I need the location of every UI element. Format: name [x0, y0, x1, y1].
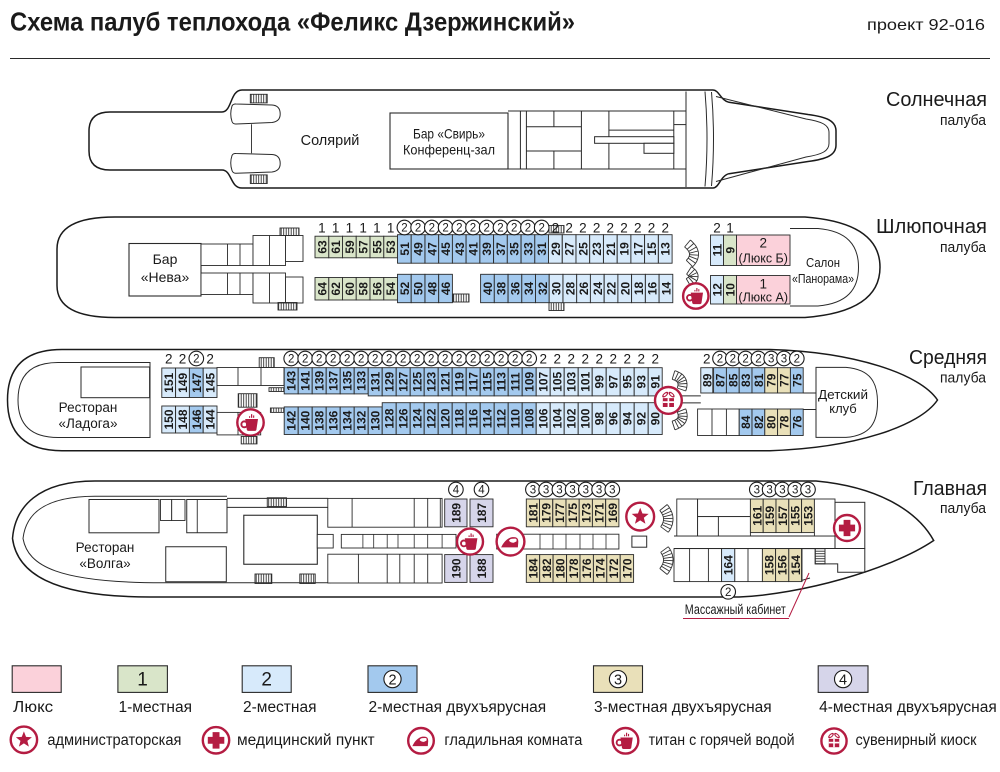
svg-text:Солнечная: Солнечная: [886, 89, 987, 111]
svg-text:2: 2: [759, 236, 767, 251]
svg-text:29: 29: [549, 242, 563, 256]
svg-text:121: 121: [439, 371, 453, 391]
svg-text:16: 16: [646, 282, 660, 296]
svg-text:141: 141: [299, 370, 313, 390]
svg-text:2: 2: [302, 354, 308, 366]
svg-text:3: 3: [583, 485, 589, 497]
svg-text:2: 2: [414, 354, 420, 366]
svg-text:145: 145: [204, 372, 218, 392]
svg-text:107: 107: [537, 371, 551, 391]
svg-text:116: 116: [467, 409, 481, 429]
svg-text:18: 18: [632, 282, 646, 296]
svg-text:31: 31: [535, 242, 549, 256]
svg-text:100: 100: [579, 408, 593, 428]
svg-text:2: 2: [288, 354, 294, 366]
svg-text:143: 143: [285, 370, 299, 390]
svg-text:2: 2: [456, 223, 462, 235]
svg-text:2: 2: [415, 223, 421, 235]
svg-text:39: 39: [480, 242, 494, 256]
svg-text:104: 104: [551, 408, 565, 428]
svg-text:53: 53: [384, 240, 398, 254]
svg-text:3: 3: [596, 485, 602, 497]
svg-text:175: 175: [566, 503, 580, 523]
svg-text:2: 2: [717, 354, 723, 366]
svg-text:102: 102: [565, 408, 579, 428]
svg-text:2: 2: [456, 354, 462, 366]
svg-text:2: 2: [498, 354, 504, 366]
svg-text:4: 4: [478, 485, 485, 497]
svg-text:9: 9: [724, 247, 738, 254]
svg-text:4: 4: [453, 485, 460, 497]
svg-text:2: 2: [388, 672, 396, 688]
svg-text:38: 38: [495, 282, 509, 296]
svg-text:2: 2: [609, 351, 617, 366]
svg-text:188: 188: [475, 558, 489, 578]
svg-text:проект 92-016: проект 92-016: [867, 17, 985, 34]
svg-text:36: 36: [508, 282, 522, 296]
svg-text:178: 178: [567, 558, 581, 578]
svg-text:2: 2: [372, 354, 378, 366]
svg-text:2: 2: [525, 223, 531, 235]
svg-text:140: 140: [299, 410, 313, 430]
svg-text:34: 34: [522, 282, 536, 296]
svg-text:173: 173: [579, 503, 593, 523]
svg-text:17: 17: [631, 242, 645, 256]
svg-text:135: 135: [341, 370, 355, 390]
svg-text:10: 10: [724, 283, 738, 297]
svg-text:76: 76: [790, 415, 804, 429]
svg-text:125: 125: [411, 371, 425, 391]
svg-text:3: 3: [556, 485, 562, 497]
svg-text:21: 21: [604, 242, 618, 256]
svg-text:2: 2: [358, 354, 364, 366]
svg-text:117: 117: [467, 372, 481, 392]
svg-text:Солярий: Солярий: [301, 133, 360, 149]
svg-text:151: 151: [162, 372, 176, 392]
svg-text:«Нева»: «Нева»: [141, 269, 190, 285]
svg-text:3: 3: [569, 485, 575, 497]
svg-text:33: 33: [521, 242, 535, 256]
svg-text:142: 142: [285, 410, 299, 430]
svg-text:1: 1: [387, 220, 395, 235]
svg-text:Шлюпочная: Шлюпочная: [876, 216, 987, 238]
svg-text:2: 2: [623, 351, 631, 366]
svg-text:179: 179: [540, 503, 554, 523]
svg-text:15: 15: [645, 242, 659, 256]
svg-text:98: 98: [593, 412, 607, 426]
svg-text:2: 2: [620, 220, 628, 235]
svg-text:131: 131: [369, 371, 383, 391]
svg-text:2: 2: [794, 354, 800, 366]
svg-text:146: 146: [190, 409, 204, 429]
svg-text:3: 3: [766, 485, 772, 497]
svg-text:«Панорама»: «Панорама»: [792, 272, 854, 286]
svg-text:2: 2: [330, 354, 336, 366]
svg-text:2: 2: [400, 354, 406, 366]
svg-text:28: 28: [563, 282, 577, 296]
svg-text:11: 11: [711, 244, 725, 257]
svg-text:95: 95: [621, 375, 635, 389]
svg-text:3: 3: [609, 485, 615, 497]
svg-text:112: 112: [495, 409, 509, 429]
svg-text:2: 2: [511, 223, 517, 235]
svg-text:2: 2: [316, 354, 322, 366]
svg-text:Ресторан: Ресторан: [59, 400, 118, 415]
svg-text:Ресторан: Ресторан: [76, 540, 135, 555]
svg-text:«Ладога»: «Ладога»: [59, 416, 118, 431]
svg-text:2: 2: [730, 354, 736, 366]
svg-text:2: 2: [179, 351, 187, 366]
svg-text:2: 2: [497, 223, 503, 235]
svg-text:титан с горячей водой: титан с горячей водой: [649, 732, 795, 749]
svg-text:153: 153: [802, 505, 816, 525]
svg-text:2: 2: [713, 220, 721, 235]
svg-text:138: 138: [313, 410, 327, 430]
svg-text:сувенирный киоск: сувенирный киоск: [856, 732, 977, 749]
svg-text:47: 47: [425, 242, 439, 256]
svg-text:26: 26: [577, 282, 591, 296]
svg-text:клуб: клуб: [829, 401, 857, 416]
svg-text:1: 1: [346, 220, 354, 235]
svg-text:156: 156: [776, 555, 790, 575]
svg-text:144: 144: [204, 409, 218, 429]
svg-text:122: 122: [425, 408, 439, 428]
svg-text:25: 25: [576, 242, 590, 256]
svg-text:62: 62: [329, 282, 343, 296]
svg-text:52: 52: [398, 282, 412, 296]
svg-text:148: 148: [176, 409, 190, 429]
svg-text:176: 176: [580, 558, 594, 578]
svg-text:«Волга»: «Волга»: [79, 556, 130, 571]
svg-text:2: 2: [470, 354, 476, 366]
svg-text:2: 2: [725, 587, 731, 599]
svg-text:2: 2: [661, 220, 669, 235]
svg-text:110: 110: [509, 409, 523, 429]
svg-text:администраторская: администраторская: [47, 732, 181, 749]
svg-text:2: 2: [567, 351, 575, 366]
svg-text:132: 132: [355, 410, 369, 430]
svg-text:174: 174: [594, 558, 608, 578]
svg-text:2: 2: [538, 223, 544, 235]
svg-text:палуба: палуба: [940, 112, 987, 129]
svg-text:172: 172: [607, 558, 621, 578]
svg-text:56: 56: [370, 282, 384, 296]
svg-text:Средняя: Средняя: [909, 347, 987, 369]
svg-text:37: 37: [494, 242, 508, 256]
svg-text:Салон: Салон: [806, 256, 840, 270]
svg-text:106: 106: [537, 408, 551, 428]
svg-text:2-местная: 2-местная: [243, 699, 316, 716]
svg-text:43: 43: [453, 242, 467, 256]
svg-text:20: 20: [618, 282, 632, 296]
svg-text:60: 60: [343, 282, 357, 296]
svg-text:2: 2: [261, 670, 272, 691]
svg-text:3: 3: [614, 672, 622, 688]
svg-text:180: 180: [553, 558, 567, 578]
svg-text:2: 2: [470, 223, 476, 235]
svg-text:89: 89: [700, 373, 714, 387]
svg-text:3: 3: [754, 485, 760, 497]
svg-text:2: 2: [165, 351, 173, 366]
svg-text:2: 2: [742, 354, 748, 366]
svg-text:палуба: палуба: [940, 239, 987, 256]
svg-text:2: 2: [429, 223, 435, 235]
svg-text:190: 190: [449, 558, 463, 578]
svg-text:Конференц-зал: Конференц-зал: [403, 142, 495, 158]
svg-text:59: 59: [343, 240, 357, 254]
svg-text:3: 3: [792, 485, 798, 497]
svg-text:Детский: Детский: [818, 387, 868, 402]
svg-text:64: 64: [315, 282, 329, 296]
svg-text:113: 113: [495, 372, 509, 392]
svg-text:126: 126: [397, 408, 411, 428]
svg-text:гладильная комната: гладильная комната: [444, 732, 582, 749]
svg-text:35: 35: [508, 242, 522, 256]
svg-text:154: 154: [789, 555, 803, 575]
svg-text:2: 2: [484, 354, 490, 366]
svg-text:32: 32: [536, 282, 550, 296]
svg-text:2: 2: [193, 354, 199, 366]
svg-text:3: 3: [530, 485, 536, 497]
svg-text:Люкс: Люкс: [13, 699, 53, 716]
svg-text:13: 13: [659, 242, 673, 256]
svg-text:134: 134: [341, 410, 355, 430]
svg-text:149: 149: [176, 372, 190, 392]
svg-text:2: 2: [595, 351, 603, 366]
svg-text:2: 2: [593, 220, 601, 235]
svg-text:30: 30: [550, 282, 564, 296]
svg-text:97: 97: [607, 375, 621, 389]
svg-text:2: 2: [344, 354, 350, 366]
svg-text:4-местная двухъярусная: 4-местная двухъярусная: [819, 699, 997, 716]
svg-text:палуба: палуба: [940, 370, 987, 387]
svg-text:3: 3: [779, 485, 785, 497]
svg-text:3: 3: [768, 354, 774, 366]
svg-text:1: 1: [359, 220, 367, 235]
svg-text:115: 115: [481, 372, 495, 392]
svg-text:4: 4: [839, 672, 847, 688]
svg-text:2: 2: [206, 351, 214, 366]
svg-text:2: 2: [581, 351, 589, 366]
svg-text:147: 147: [190, 372, 204, 392]
svg-text:1: 1: [332, 220, 340, 235]
svg-text:105: 105: [551, 371, 565, 391]
svg-text:1: 1: [373, 220, 381, 235]
svg-text:92: 92: [635, 412, 649, 426]
svg-text:94: 94: [621, 412, 635, 426]
svg-text:2: 2: [442, 354, 448, 366]
svg-text:189: 189: [449, 503, 463, 523]
svg-text:Схема палуб теплохода «Феликс: Схема палуб теплохода «Феликс Дзержински…: [10, 7, 575, 37]
svg-text:1: 1: [726, 220, 734, 235]
svg-text:158: 158: [763, 555, 777, 575]
svg-text:137: 137: [327, 370, 341, 390]
svg-text:90: 90: [649, 412, 663, 426]
svg-text:1: 1: [318, 220, 326, 235]
svg-text:54: 54: [384, 282, 398, 296]
svg-text:48: 48: [425, 282, 439, 296]
svg-text:58: 58: [357, 282, 371, 296]
svg-text:187: 187: [475, 503, 489, 523]
svg-text:118: 118: [453, 409, 467, 429]
svg-text:51: 51: [398, 242, 412, 256]
svg-text:182: 182: [540, 558, 554, 578]
svg-text:114: 114: [481, 409, 495, 429]
svg-text:181: 181: [526, 503, 540, 523]
svg-text:111: 111: [509, 372, 523, 391]
svg-text:109: 109: [523, 371, 537, 391]
svg-text:1-местная: 1-местная: [119, 699, 192, 716]
svg-text:12: 12: [711, 283, 725, 297]
svg-text:170: 170: [621, 558, 635, 578]
svg-text:2: 2: [648, 220, 656, 235]
svg-text:96: 96: [607, 412, 621, 426]
svg-text:2: 2: [755, 354, 761, 366]
svg-text:169: 169: [606, 503, 620, 523]
svg-text:2: 2: [552, 220, 560, 235]
svg-text:Бар «Свирь»: Бар «Свирь»: [413, 126, 485, 142]
svg-text:Главная: Главная: [913, 478, 987, 500]
svg-text:75: 75: [790, 373, 804, 387]
svg-text:136: 136: [327, 410, 341, 430]
svg-text:139: 139: [313, 370, 327, 390]
svg-text:2: 2: [607, 220, 615, 235]
svg-text:93: 93: [635, 375, 649, 389]
svg-text:120: 120: [439, 408, 453, 428]
svg-text:40: 40: [481, 282, 495, 296]
svg-text:палуба: палуба: [940, 500, 987, 517]
svg-text:91: 91: [649, 375, 663, 389]
svg-text:108: 108: [523, 408, 537, 428]
svg-text:46: 46: [439, 282, 453, 296]
svg-text:1: 1: [759, 277, 767, 292]
svg-text:55: 55: [370, 240, 384, 254]
svg-text:19: 19: [618, 242, 632, 256]
svg-text:2: 2: [634, 220, 642, 235]
svg-text:61: 61: [329, 240, 343, 254]
svg-text:2: 2: [401, 223, 407, 235]
svg-text:3: 3: [543, 485, 549, 497]
svg-text:1: 1: [137, 670, 148, 691]
svg-text:2: 2: [526, 354, 532, 366]
svg-text:129: 129: [383, 371, 397, 391]
svg-text:2: 2: [428, 354, 434, 366]
svg-text:127: 127: [397, 371, 411, 391]
svg-text:2: 2: [512, 354, 518, 366]
svg-text:3: 3: [781, 354, 787, 366]
svg-text:2: 2: [651, 351, 659, 366]
svg-text:27: 27: [563, 242, 577, 256]
svg-text:133: 133: [355, 370, 369, 390]
svg-text:130: 130: [369, 410, 383, 430]
svg-text:49: 49: [412, 242, 426, 256]
svg-text:Массажный кабинет: Массажный кабинет: [685, 602, 786, 617]
svg-text:2: 2: [579, 220, 587, 235]
svg-text:57: 57: [357, 240, 371, 254]
svg-text:14: 14: [660, 282, 674, 296]
svg-text:124: 124: [411, 408, 425, 428]
svg-text:50: 50: [412, 282, 426, 296]
svg-text:2: 2: [386, 354, 392, 366]
svg-text:99: 99: [593, 375, 607, 389]
svg-text:(Люкс Б): (Люкс Б): [738, 252, 787, 266]
svg-text:(Люкс А): (Люкс А): [738, 291, 788, 305]
svg-text:171: 171: [593, 503, 607, 523]
svg-text:3: 3: [805, 485, 811, 497]
svg-text:101: 101: [579, 371, 593, 391]
svg-text:184: 184: [527, 558, 541, 578]
svg-text:103: 103: [565, 371, 579, 391]
svg-text:177: 177: [553, 503, 567, 523]
svg-text:2: 2: [565, 220, 573, 235]
svg-text:2: 2: [703, 351, 711, 366]
svg-text:150: 150: [162, 409, 176, 429]
svg-text:Бар: Бар: [153, 251, 178, 267]
svg-text:45: 45: [439, 242, 453, 256]
svg-text:22: 22: [605, 282, 619, 296]
svg-text:119: 119: [453, 372, 467, 392]
svg-text:медицинский пункт: медицинский пункт: [237, 732, 375, 749]
svg-text:2: 2: [483, 223, 489, 235]
svg-text:2-местная двухъярусная: 2-местная двухъярусная: [369, 699, 547, 716]
svg-text:2: 2: [637, 351, 645, 366]
svg-text:128: 128: [383, 408, 397, 428]
svg-text:3-местная двухъярусная: 3-местная двухъярусная: [594, 699, 772, 716]
svg-text:123: 123: [425, 371, 439, 391]
svg-text:2: 2: [442, 223, 448, 235]
svg-text:2: 2: [539, 351, 547, 366]
svg-text:41: 41: [467, 242, 481, 256]
svg-text:23: 23: [590, 242, 604, 256]
svg-text:24: 24: [591, 282, 605, 296]
svg-text:63: 63: [315, 240, 329, 254]
svg-text:2: 2: [553, 351, 561, 366]
svg-text:164: 164: [722, 555, 736, 575]
